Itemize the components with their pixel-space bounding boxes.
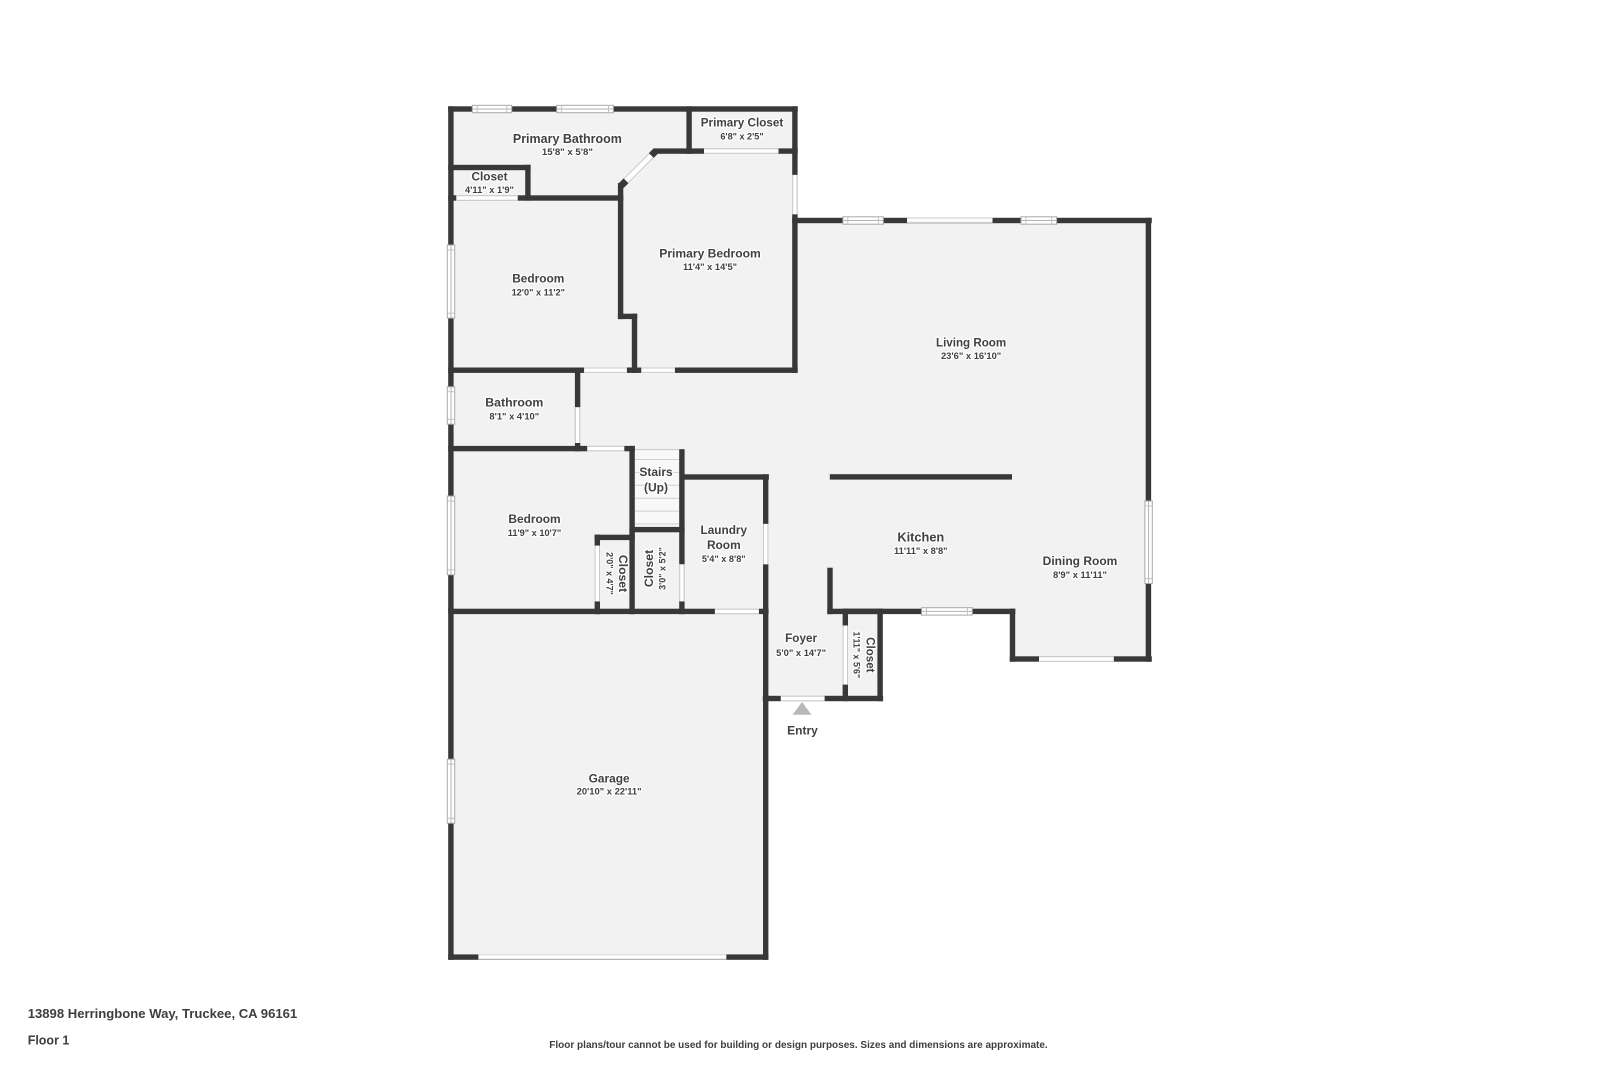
svg-text:Stairs: Stairs xyxy=(639,465,673,479)
svg-text:Floor 1: Floor 1 xyxy=(28,1033,70,1047)
svg-text:12'0" x 11'2": 12'0" x 11'2" xyxy=(512,287,565,297)
svg-text:11'4" x 14'5": 11'4" x 14'5" xyxy=(683,262,737,272)
svg-text:Kitchen: Kitchen xyxy=(897,530,944,545)
svg-text:Closet: Closet xyxy=(471,170,507,184)
svg-text:Closet: Closet xyxy=(863,637,876,673)
svg-text:15'8" x 5'8": 15'8" x 5'8" xyxy=(542,147,593,158)
svg-text:5'4" x 8'8": 5'4" x 8'8" xyxy=(702,554,746,564)
svg-text:20'10" x 22'11": 20'10" x 22'11" xyxy=(577,786,642,797)
svg-text:Primary Bathroom: Primary Bathroom xyxy=(513,132,622,146)
svg-text:(Up): (Up) xyxy=(644,480,668,494)
svg-text:Entry: Entry xyxy=(787,723,818,737)
svg-text:23'6" x 16'10": 23'6" x 16'10" xyxy=(941,350,1001,361)
svg-text:11'9" x 10'7": 11'9" x 10'7" xyxy=(508,528,561,538)
svg-text:Primary Bedroom: Primary Bedroom xyxy=(659,247,761,261)
svg-text:Room: Room xyxy=(707,538,741,552)
svg-text:Closet: Closet xyxy=(616,555,630,592)
svg-text:4'11" x 1'9": 4'11" x 1'9" xyxy=(465,185,514,195)
svg-text:8'9" x 11'11": 8'9" x 11'11" xyxy=(1053,569,1107,580)
svg-text:Living Room: Living Room xyxy=(936,336,1006,349)
svg-text:13898 Herringbone Way, Truckee: 13898 Herringbone Way, Truckee, CA 96161 xyxy=(28,1006,298,1021)
svg-text:8'1" x 4'10": 8'1" x 4'10" xyxy=(489,410,539,421)
svg-text:Bathroom: Bathroom xyxy=(485,396,543,410)
svg-text:2'0" x 4'7": 2'0" x 4'7" xyxy=(605,552,615,595)
svg-text:Dining Room: Dining Room xyxy=(1043,554,1118,568)
svg-text:Floor plans/tour cannot be use: Floor plans/tour cannot be used for buil… xyxy=(549,1040,1048,1051)
svg-text:Bedroom: Bedroom xyxy=(508,512,560,526)
svg-text:Closet: Closet xyxy=(642,550,656,587)
svg-text:3'0" x 5'2": 3'0" x 5'2" xyxy=(658,547,668,590)
svg-text:Foyer: Foyer xyxy=(785,632,817,645)
svg-text:Laundry: Laundry xyxy=(701,523,748,537)
svg-text:Bedroom: Bedroom xyxy=(512,272,564,286)
svg-text:1'11" x 5'6": 1'11" x 5'6" xyxy=(851,631,861,678)
svg-text:11'11" x 8'8": 11'11" x 8'8" xyxy=(894,546,948,556)
svg-text:Primary Closet: Primary Closet xyxy=(701,117,784,130)
svg-text:Garage: Garage xyxy=(589,771,630,785)
svg-text:6'8" x 2'5": 6'8" x 2'5" xyxy=(720,131,763,141)
svg-text:5'0" x 14'7": 5'0" x 14'7" xyxy=(776,647,826,658)
